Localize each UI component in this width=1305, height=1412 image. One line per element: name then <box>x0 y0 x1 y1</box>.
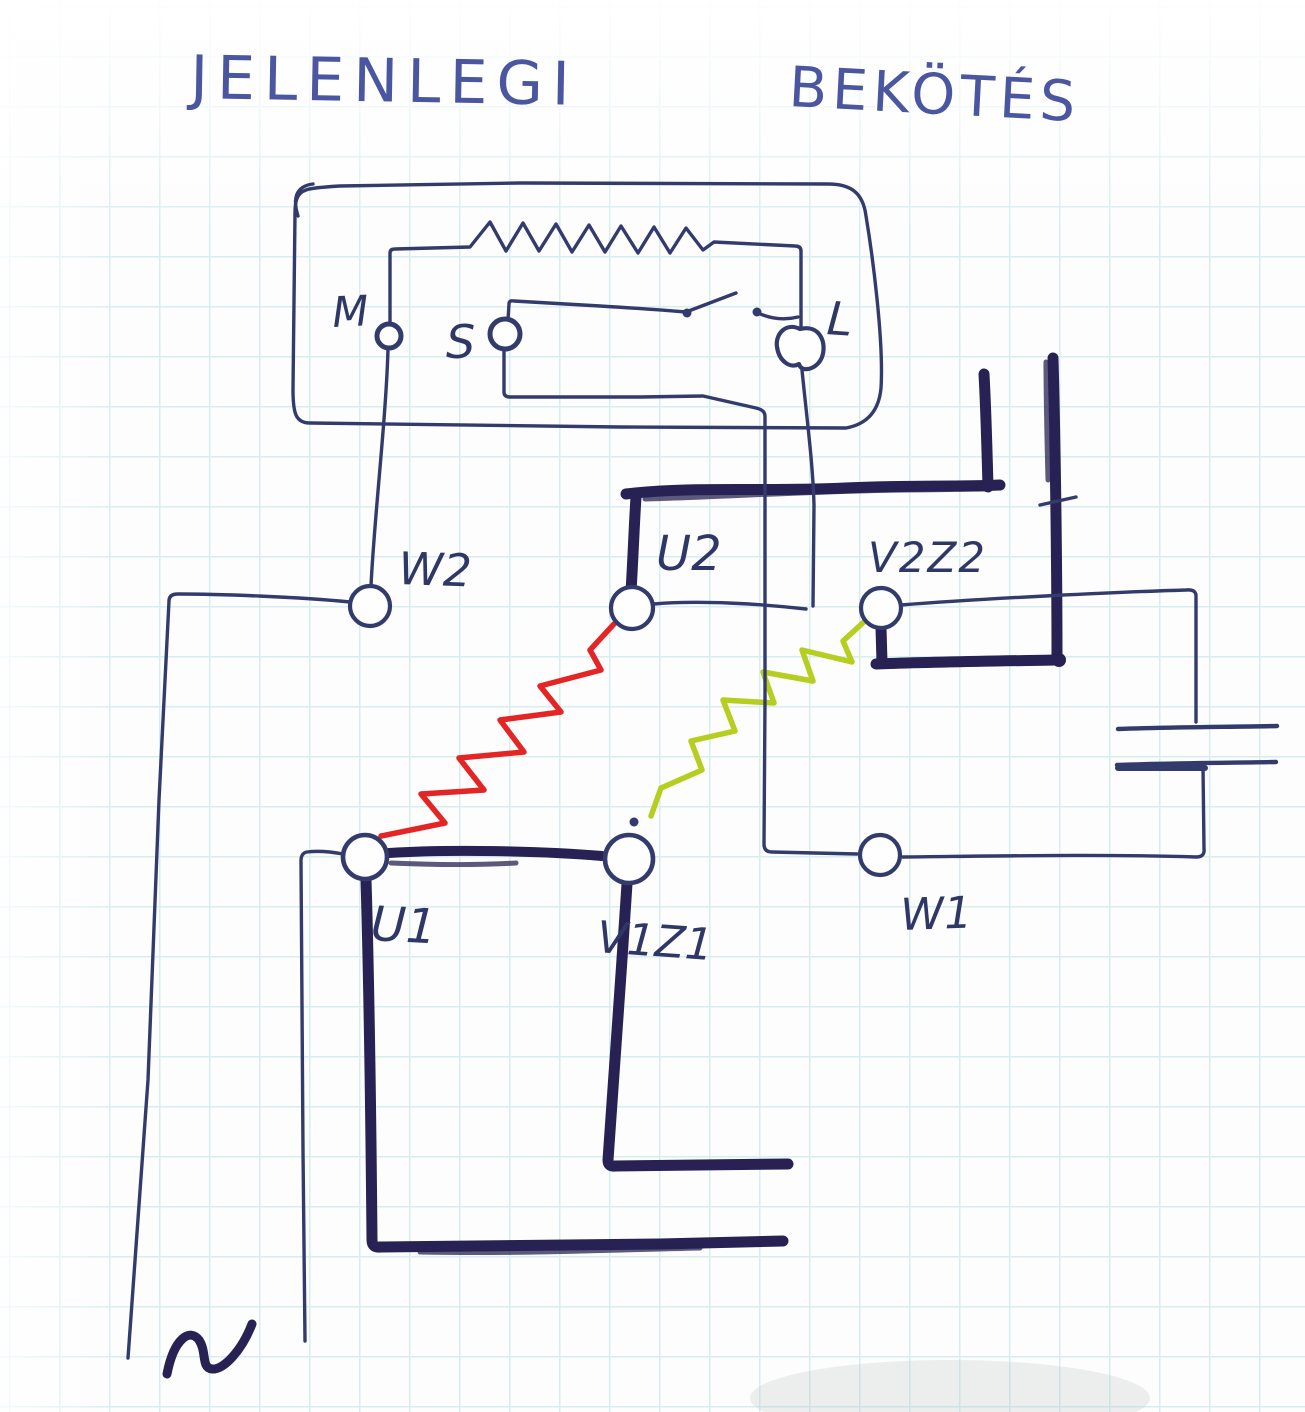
terminal-node-u1 <box>343 835 387 879</box>
wire-right-riser-b <box>1053 358 1057 660</box>
wire-right-riser-a <box>984 374 988 487</box>
terminal-node-l <box>777 327 824 369</box>
wire-right-riser-b-second-pass <box>1046 362 1048 480</box>
capacitor-plate-top <box>1118 726 1277 729</box>
label-terminal-w2: W2 <box>398 542 473 598</box>
graph-paper-sheet: M S L W2 U2 V2Z2 U1 V1Z1 W1 JELENLEGI BE… <box>0 0 1305 1412</box>
terminal-node-w2 <box>350 586 390 626</box>
wire-u2-riser <box>631 497 636 591</box>
switch-contact-lead <box>758 313 798 319</box>
main-winding-zigzag <box>381 624 614 836</box>
wire-u2-to-l <box>654 602 806 609</box>
terminal-node-w1 <box>860 835 900 875</box>
terminal-node-s <box>490 319 520 349</box>
label-terminal-v1z1: V1Z1 <box>595 912 715 971</box>
marker-blob <box>1052 653 1066 667</box>
pen-dot-above-v1z1 <box>630 818 639 827</box>
wire-u1-v1z1-link <box>389 851 602 856</box>
wire-capacitor-to-w1 <box>903 766 1204 857</box>
wire-m-to-w2 <box>371 349 388 586</box>
wire-u1-v1z1-link-second-pass <box>391 863 516 865</box>
wiring-diagram: M S L W2 U2 V2Z2 U1 V1Z1 W1 JELENLEGI BE… <box>0 0 1305 1412</box>
page-title: JELENLEGI BEKÖTÉS <box>186 43 1082 135</box>
terminal-node-m <box>377 324 401 348</box>
label-terminal-u1: U1 <box>369 896 438 955</box>
switch-contact-dot-left <box>683 309 692 318</box>
wire-v2z2-stub <box>881 628 882 662</box>
aux-winding-zigzag <box>651 620 866 816</box>
ac-source-tilde <box>167 1324 252 1374</box>
terminal-node-v2z2 <box>861 588 901 628</box>
label-terminal-m: M <box>331 286 370 337</box>
label-terminal-l: L <box>825 291 854 347</box>
scan-smudge <box>750 1360 1150 1412</box>
terminal-node-v1z1 <box>605 835 653 883</box>
title-word-2: BEKÖTÉS <box>787 55 1082 135</box>
switch-contact-dot-right <box>753 308 762 317</box>
label-terminal-s: S <box>446 315 475 369</box>
terminal-node-u2 <box>611 587 653 629</box>
wire-v2z2-horizontal <box>876 660 1056 664</box>
capacitor-plate-bottom <box>1117 762 1276 765</box>
resistor-branch <box>390 222 801 326</box>
wire-u1-to-mains <box>301 851 343 1341</box>
title-word-1: JELENLEGI <box>186 43 580 120</box>
switch-arm <box>508 293 736 320</box>
wire-w2-to-mains <box>128 594 350 1358</box>
label-terminal-u2: U2 <box>656 526 722 582</box>
label-terminal-w1: W1 <box>900 888 973 941</box>
label-terminal-v2z2: V2Z2 <box>868 533 987 582</box>
